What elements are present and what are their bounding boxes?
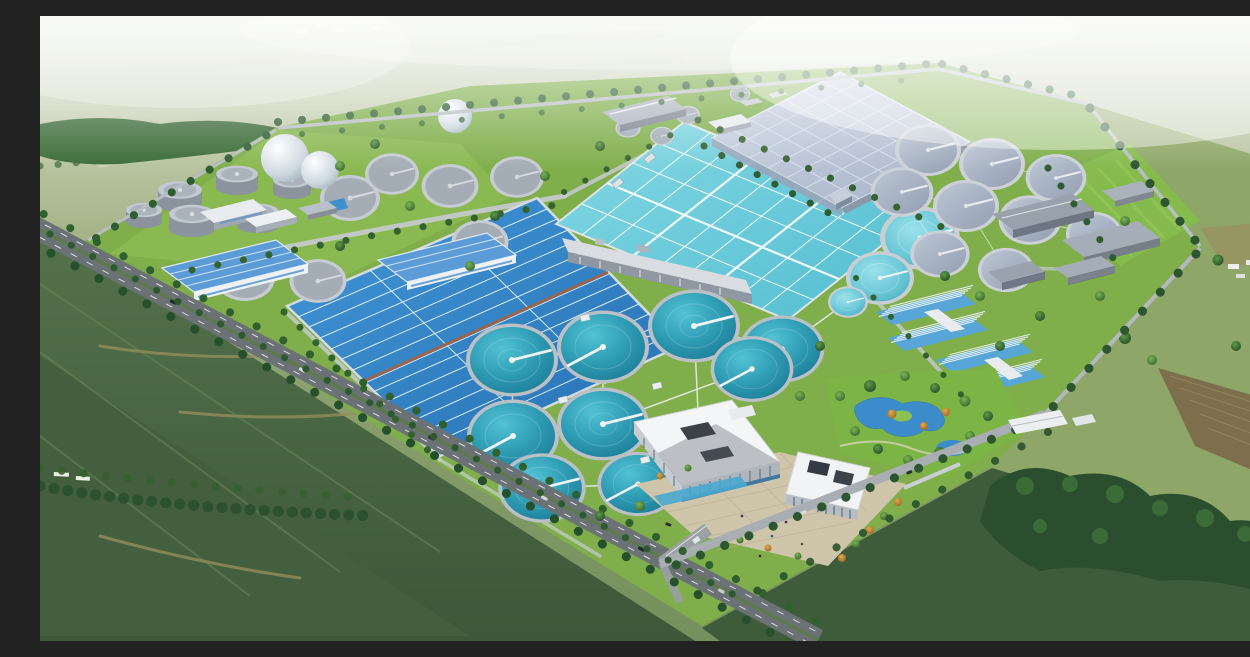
aerial-rendering-wastewater-plant: Aerial 3D rendering of a wastewater trea… xyxy=(40,16,1250,641)
haze xyxy=(40,16,1250,171)
rendering-canvas: Aerial 3D rendering of a wastewater trea… xyxy=(40,16,1250,641)
